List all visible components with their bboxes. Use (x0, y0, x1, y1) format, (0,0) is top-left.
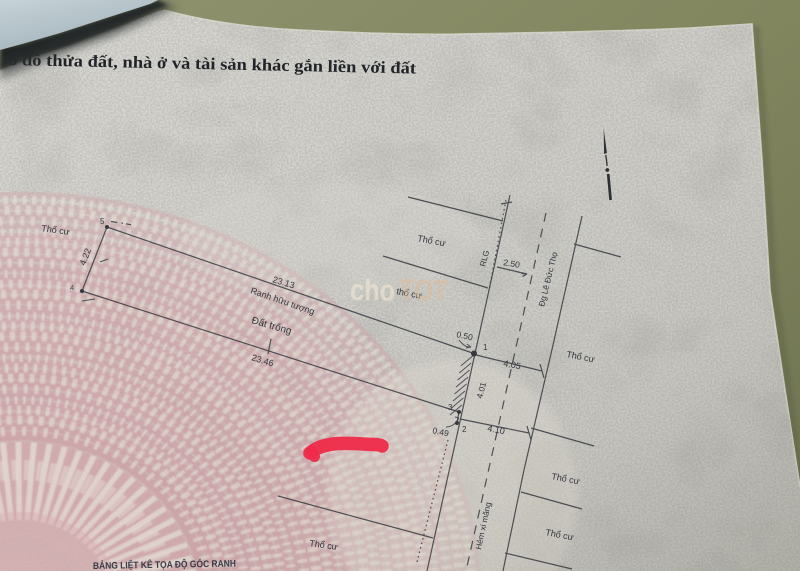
svg-text:cho: cho (350, 274, 396, 308)
svg-text:TOT: TOT (399, 274, 449, 308)
svg-text:4: 4 (70, 283, 74, 292)
svg-text:2: 2 (462, 425, 467, 434)
svg-text:3: 3 (448, 403, 453, 412)
svg-text:5: 5 (100, 217, 105, 226)
svg-text:1: 1 (483, 343, 488, 352)
